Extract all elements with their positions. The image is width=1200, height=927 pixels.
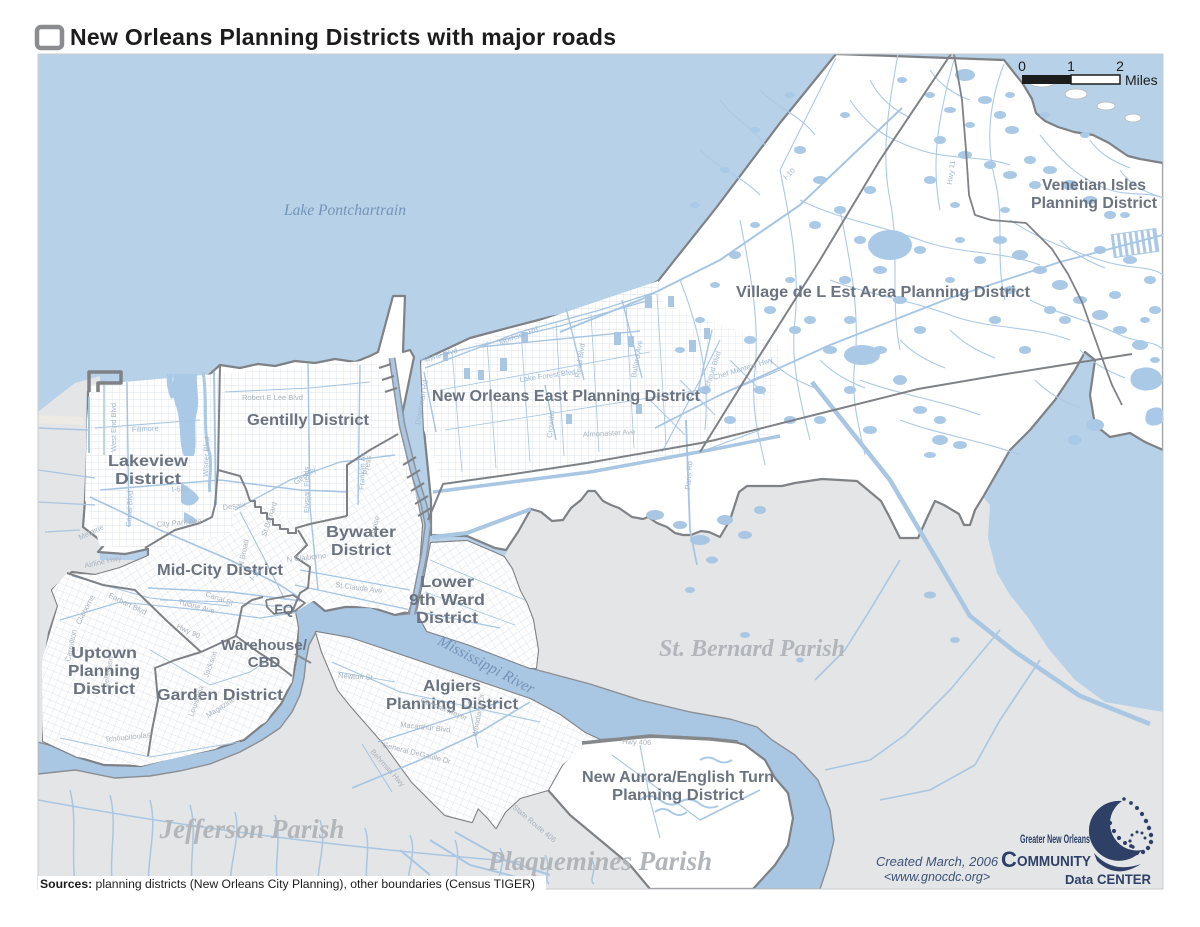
svg-text:<www.gnocdc.org>: <www.gnocdc.org> <box>884 870 990 884</box>
svg-text:2: 2 <box>1116 58 1124 74</box>
svg-text:New Orleans East Planning Dist: New Orleans East Planning District <box>432 388 701 405</box>
svg-text:I-610: I-610 <box>171 484 189 494</box>
svg-text:Robert E Lee Blvd: Robert E Lee Blvd <box>242 393 303 402</box>
svg-text:Mid-City District: Mid-City District <box>157 562 284 579</box>
svg-text:Jefferson Parish: Jefferson Parish <box>159 814 345 844</box>
svg-text:St. Bernard Parish: St. Bernard Parish <box>659 636 845 662</box>
svg-text:Planning District: Planning District <box>612 787 744 804</box>
svg-text:Plaquemines Parish: Plaquemines Parish <box>487 846 712 876</box>
svg-text:New Orleans Planning Districts: New Orleans Planning Districts with majo… <box>70 24 616 50</box>
svg-text:OMMUNITY: OMMUNITY <box>1017 854 1091 870</box>
svg-text:Planning District: Planning District <box>1031 195 1157 212</box>
svg-text:1: 1 <box>1067 58 1075 74</box>
svg-text:Village de L Est Area Planning: Village de L Est Area Planning District <box>736 284 1031 301</box>
svg-text:Gentilly District: Gentilly District <box>247 412 370 429</box>
svg-text:Sources: planning districts (N: Sources: planning districts (New Orleans… <box>40 877 535 891</box>
svg-text:Algiers: Algiers <box>423 678 481 695</box>
svg-text:Warehouse/: Warehouse/ <box>221 637 308 654</box>
svg-text:Lakeview: Lakeview <box>108 453 189 470</box>
svg-text:Fillmore: Fillmore <box>132 424 159 434</box>
svg-text:District: District <box>416 610 478 627</box>
svg-text:Greater New Orleans: Greater New Orleans <box>1020 834 1090 846</box>
svg-text:New Aurora/English Turn: New Aurora/English Turn <box>582 769 774 786</box>
svg-text:Venetian Isles: Venetian Isles <box>1042 177 1146 194</box>
svg-text:Miles: Miles <box>1125 72 1158 88</box>
svg-text:FQ: FQ <box>274 601 294 617</box>
svg-text:9th Ward: 9th Ward <box>409 592 485 609</box>
svg-text:Newton St: Newton St <box>338 671 374 682</box>
svg-text:Data: Data <box>1065 872 1094 887</box>
svg-text:Elysian Fields: Elysian Fields <box>302 466 311 513</box>
svg-text:West End Blvd: West End Blvd <box>109 403 118 452</box>
svg-text:Canal Blvd: Canal Blvd <box>124 490 135 527</box>
svg-text:District: District <box>331 542 391 559</box>
svg-text:CBD: CBD <box>248 654 281 671</box>
svg-text:CENTER: CENTER <box>1097 871 1151 887</box>
svg-text:Hwy 406: Hwy 406 <box>622 737 651 747</box>
svg-text:Bywater: Bywater <box>326 524 396 541</box>
svg-text:C: C <box>1001 847 1017 872</box>
svg-text:Lake Pontchartrain: Lake Pontchartrain <box>283 202 406 219</box>
svg-text:Created March, 2006: Created March, 2006 <box>876 854 999 869</box>
svg-text:Uptown: Uptown <box>71 645 137 662</box>
svg-text:Lower: Lower <box>420 574 474 591</box>
svg-text:0: 0 <box>1018 58 1026 74</box>
svg-text:Wisner Blvd: Wisner Blvd <box>201 437 211 477</box>
